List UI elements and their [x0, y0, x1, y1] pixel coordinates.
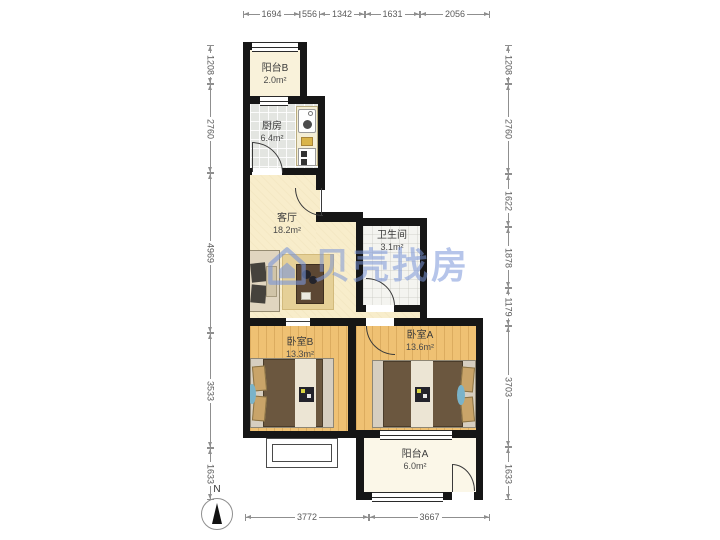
wall [394, 318, 483, 326]
dimension-value: 4969 [206, 241, 216, 265]
dimension-value: 1633 [206, 462, 216, 486]
faucet-icon [308, 111, 313, 116]
wall [356, 492, 372, 500]
dimension-value: 1179 [504, 295, 514, 318]
room-name: 阳台A [383, 449, 447, 461]
wall [356, 218, 427, 226]
floorplan-canvas: 1694 556 1342 1631 2056 3772 3667 1208 2… [0, 0, 720, 540]
dimension-top-5: 2056 [420, 8, 490, 21]
room-name: 阳台B [243, 63, 307, 75]
dimension-value: 3703 [504, 374, 514, 398]
tray-dot [423, 394, 427, 398]
room-name: 卧室B [268, 337, 332, 349]
dimension-right-7: 1633 [502, 447, 515, 500]
room-label-bathroom: 卫生间 3.1m² [360, 230, 424, 253]
wall [474, 492, 483, 500]
wall [356, 430, 364, 500]
dimension-value: 3772 [295, 512, 319, 522]
dimension-value: 1878 [504, 245, 514, 269]
dimension-value: 1633 [504, 461, 514, 485]
door-leaf-balcony-a [452, 464, 453, 492]
bed-bedroom-a [372, 360, 476, 428]
room-area: 13.3m² [268, 349, 332, 360]
burner-icon [301, 151, 307, 157]
dimension-value: 2760 [504, 117, 514, 141]
compass-ring [201, 498, 233, 530]
wall [318, 96, 325, 175]
wall [243, 431, 356, 438]
stove-icon [298, 148, 316, 166]
north-compass: N [200, 484, 234, 530]
dimension-value: 2056 [443, 9, 467, 19]
wall [476, 318, 483, 500]
wall [310, 318, 366, 326]
dimension-value: 1342 [330, 9, 354, 19]
window-balcony-b [252, 42, 298, 52]
room-label-balcony-b: 阳台B 2.0m² [243, 63, 307, 86]
coffee-table [296, 264, 324, 304]
room-area: 6.0m² [383, 461, 447, 472]
tray-dot [301, 389, 305, 393]
room-area: 6.4m² [240, 133, 304, 144]
dimension-right-1: 1208 [502, 45, 515, 84]
north-arrow-icon [212, 503, 222, 524]
dimension-right-4: 1878 [502, 227, 515, 288]
dimension-top-2: 556 [300, 8, 319, 21]
dimension-value: 1622 [504, 188, 514, 212]
dimension-left-3: 4969 [204, 173, 217, 333]
dimension-bottom-1: 3772 [245, 511, 369, 524]
room-label-balcony-a: 阳台A 6.0m² [383, 449, 447, 472]
bay-window-inner [272, 444, 332, 462]
window-balcony-a [372, 492, 443, 502]
window-kitchen-pass [260, 96, 288, 106]
dimension-right-5: 1179 [502, 288, 515, 326]
door-leaf-kitchen [252, 142, 253, 172]
paper-icon [301, 292, 311, 300]
wall [394, 305, 427, 312]
bed-bedroom-b [250, 358, 334, 428]
sink-bowl-icon [303, 120, 312, 129]
wall [243, 318, 286, 326]
dimension-value: 2760 [206, 116, 216, 140]
dimension-right-3: 1622 [502, 174, 515, 227]
room-area: 2.0m² [243, 75, 307, 86]
bed-tray [299, 387, 314, 402]
room-label-bedroom-b: 卧室B 13.3m² [268, 337, 332, 360]
room-area: 13.6m² [388, 342, 452, 353]
wall [243, 42, 252, 50]
wall [243, 168, 252, 175]
dimension-right-2: 2760 [502, 84, 515, 174]
wall [348, 326, 356, 438]
room-name: 厨房 [240, 121, 304, 133]
sofa-cushion [250, 284, 267, 303]
dimension-value: 556 [300, 9, 319, 19]
dimension-value: 1208 [206, 52, 216, 76]
dimension-value: 1631 [380, 9, 404, 19]
dimension-right-6: 3703 [502, 326, 515, 447]
room-name: 客厅 [255, 213, 319, 225]
door-leaf-entry [321, 188, 322, 215]
dimension-left-4: 3533 [204, 333, 217, 448]
sofa-seat [266, 266, 277, 297]
wall [452, 430, 483, 438]
dimension-value: 3533 [206, 378, 216, 402]
dimension-top-4: 1631 [365, 8, 420, 21]
room-label-living: 客厅 18.2m² [255, 213, 319, 236]
sofa-cushion [250, 262, 267, 282]
room-label-bedroom-a: 卧室A 13.6m² [388, 330, 452, 353]
dimension-value: 1208 [504, 52, 514, 76]
tray-dot [307, 394, 311, 398]
dimension-value: 3667 [417, 512, 441, 522]
room-name: 卫生间 [360, 230, 424, 242]
bedside-decor [457, 385, 465, 405]
wall [243, 96, 260, 104]
dimension-value: 1694 [259, 9, 283, 19]
dimension-left-1: 1208 [204, 45, 217, 84]
wall [443, 492, 452, 500]
north-label: N [200, 484, 234, 496]
sofa [248, 250, 280, 312]
dimension-left-2: 2760 [204, 84, 217, 173]
window-bedroom-a-balcony [380, 430, 452, 440]
cup-icon [309, 276, 317, 284]
wall [282, 168, 325, 175]
door-leaf-bedroom-b [286, 321, 310, 322]
room-label-kitchen: 厨房 6.4m² [240, 121, 304, 144]
dimension-top-3: 1342 [319, 8, 365, 21]
room-area: 3.1m² [360, 242, 424, 253]
dimension-bottom-2: 3667 [369, 511, 490, 524]
room-name: 卧室A [388, 330, 452, 342]
dimension-top-1: 1694 [243, 8, 300, 21]
bed-tray [415, 387, 430, 402]
tray-dot [417, 389, 421, 393]
bay-window [266, 438, 338, 468]
wall [356, 305, 366, 312]
room-area: 18.2m² [255, 225, 319, 236]
burner-icon [301, 159, 307, 165]
